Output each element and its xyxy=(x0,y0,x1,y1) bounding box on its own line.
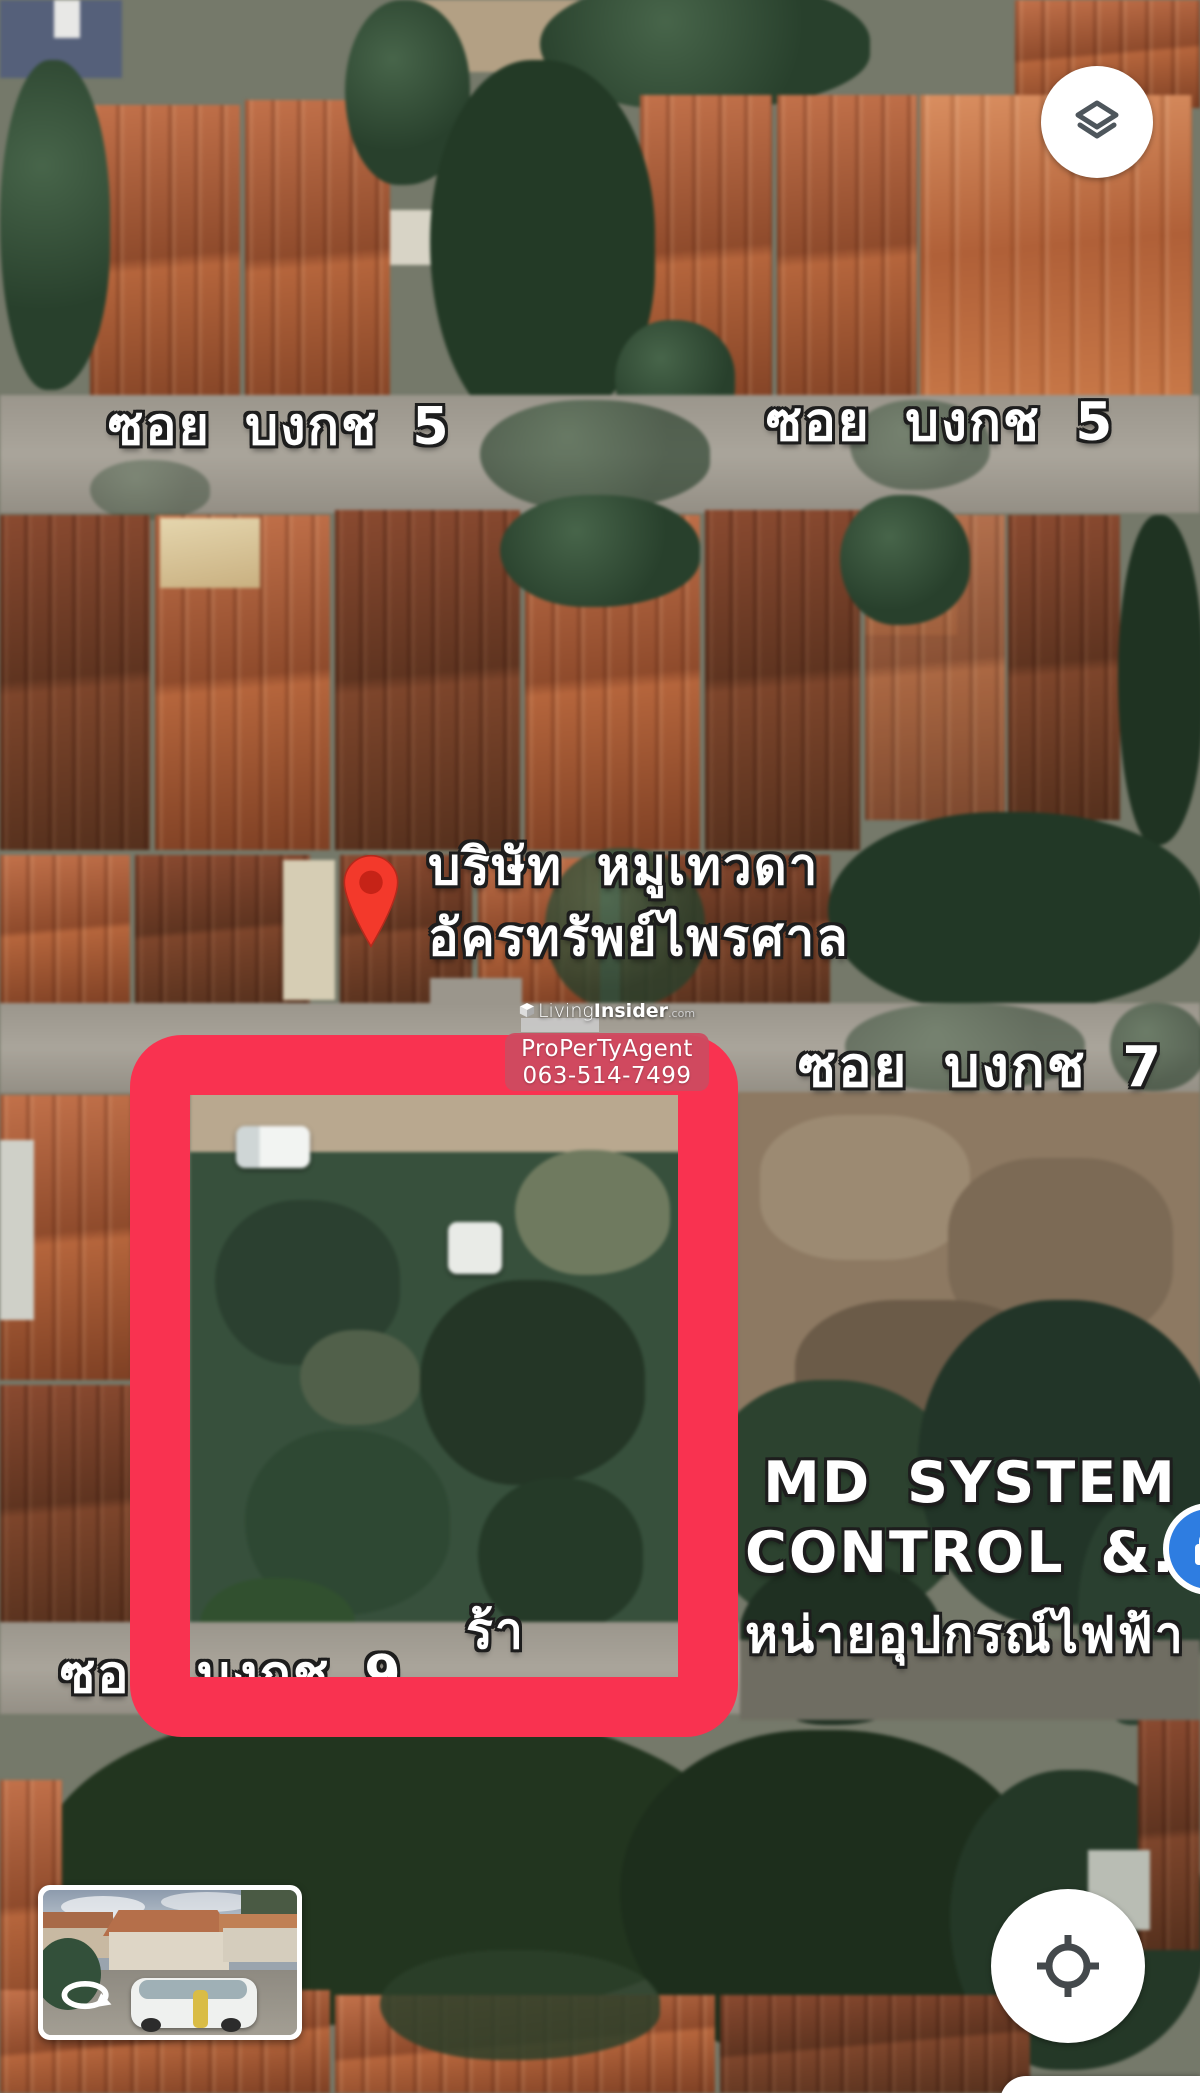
watermark-brand: LivingInsider.com xyxy=(505,998,709,1027)
watermark-phone: 063-514-7499 xyxy=(505,1063,709,1090)
street-label-bongkot5-left: ซอย บงกช 5 xyxy=(108,384,451,467)
crosshair-locate-icon xyxy=(1028,1926,1108,2006)
poi-company-line1: บริษัท หมูเทวดา xyxy=(428,832,850,903)
cube-box-icon xyxy=(519,1002,535,1020)
poi-md-system-label[interactable]: MD SYSTEM CONTROL &... xyxy=(745,1448,1195,1588)
street-view-rotate-icon xyxy=(55,1974,119,2018)
layers-button[interactable] xyxy=(1041,66,1153,178)
street-label-bongkot7: ซอย บงกช 7 xyxy=(798,1022,1163,1111)
plot-highlight-rectangle xyxy=(130,1035,738,1737)
brand-tld: .com xyxy=(668,1007,695,1020)
poi-md-line2: CONTROL &... xyxy=(745,1518,1195,1588)
shop-label-fragment-right: หน่ายอุปกรณ์ไฟฟ้า xyxy=(745,1596,1185,1675)
map-pin-icon[interactable] xyxy=(339,850,403,952)
watermark-agent-name: ProPerTyAgent xyxy=(505,1036,709,1063)
watermark-agent-box: ProPerTyAgent 063-514-7499 xyxy=(505,1033,709,1091)
watermark: LivingInsider.com ProPerTyAgent 063-514-… xyxy=(505,998,709,1091)
poi-company-label[interactable]: บริษัท หมูเทวดา อัครทรัพย์ไพรศาล xyxy=(428,832,850,974)
locate-button[interactable] xyxy=(991,1889,1145,2043)
brand-living: Living xyxy=(538,1000,594,1022)
street-label-bongkot5-right: ซอย บงกช 5 xyxy=(766,380,1114,464)
poi-md-line1: MD SYSTEM xyxy=(745,1448,1195,1518)
satellite-map-view: ซอย บงกช 9 ร้า ซอย บงกช 5 ซอย บงกช 5 ซอย… xyxy=(0,0,1200,2093)
street-view-photo xyxy=(43,1890,297,2035)
brand-insider: Insider xyxy=(594,1000,668,1022)
poi-company-line2: อัครทรัพย์ไพรศาล xyxy=(428,903,850,974)
street-view-thumbnail[interactable] xyxy=(38,1885,302,2040)
layers-icon xyxy=(1069,94,1125,150)
store-poi-icon[interactable] xyxy=(1161,1501,1200,1597)
bottom-sheet-corner[interactable] xyxy=(1000,2076,1200,2093)
